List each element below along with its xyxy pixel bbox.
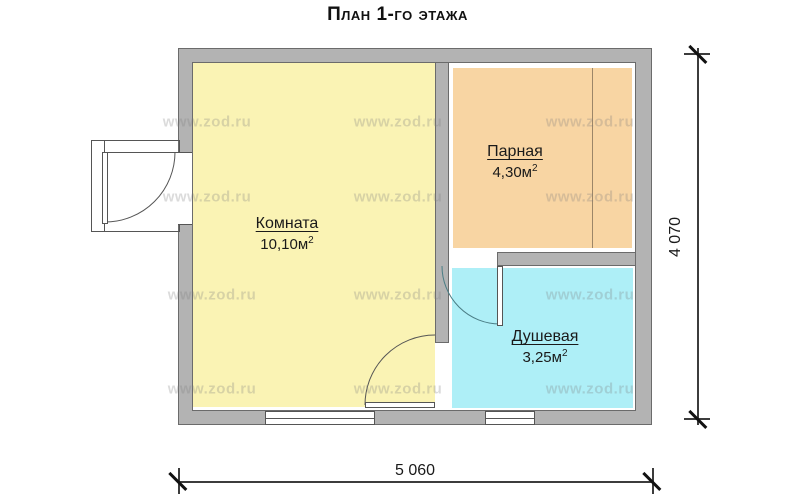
room-label-komnata: Комната 10,10м2 bbox=[256, 215, 319, 253]
room-area-sup: 2 bbox=[562, 348, 568, 359]
room-area: 10,10м2 bbox=[256, 235, 319, 253]
room-area: 4,30м2 bbox=[487, 163, 543, 181]
room-area-sup: 2 bbox=[532, 163, 538, 174]
room-area-value: 4,30м bbox=[492, 164, 532, 181]
door-leaf-entrance bbox=[102, 152, 108, 224]
door-swing-arc-shower bbox=[442, 266, 500, 324]
floor-plan-page: План 1-го этажа Комната 10,10м2 Парная 4… bbox=[0, 0, 795, 496]
door-swing-arc-entrance bbox=[105, 152, 175, 222]
room-area: 3,25м2 bbox=[512, 348, 579, 366]
room-label-parnaya: Парная 4,30м2 bbox=[487, 143, 543, 181]
room-name: Парная bbox=[487, 143, 543, 161]
room-label-dushevaya: Душевая 3,25м2 bbox=[512, 328, 579, 366]
door-leaf-komnata bbox=[365, 402, 435, 408]
room-area-sup: 2 bbox=[308, 235, 314, 246]
room-name: Душевая bbox=[512, 328, 579, 346]
room-name: Комната bbox=[256, 215, 319, 233]
room-area-value: 10,10м bbox=[260, 236, 308, 253]
door-swing-layer bbox=[0, 0, 795, 496]
room-area-value: 3,25м bbox=[522, 349, 562, 366]
door-leaf-shower bbox=[497, 266, 503, 326]
door-swing-arc-komnata bbox=[365, 335, 435, 405]
